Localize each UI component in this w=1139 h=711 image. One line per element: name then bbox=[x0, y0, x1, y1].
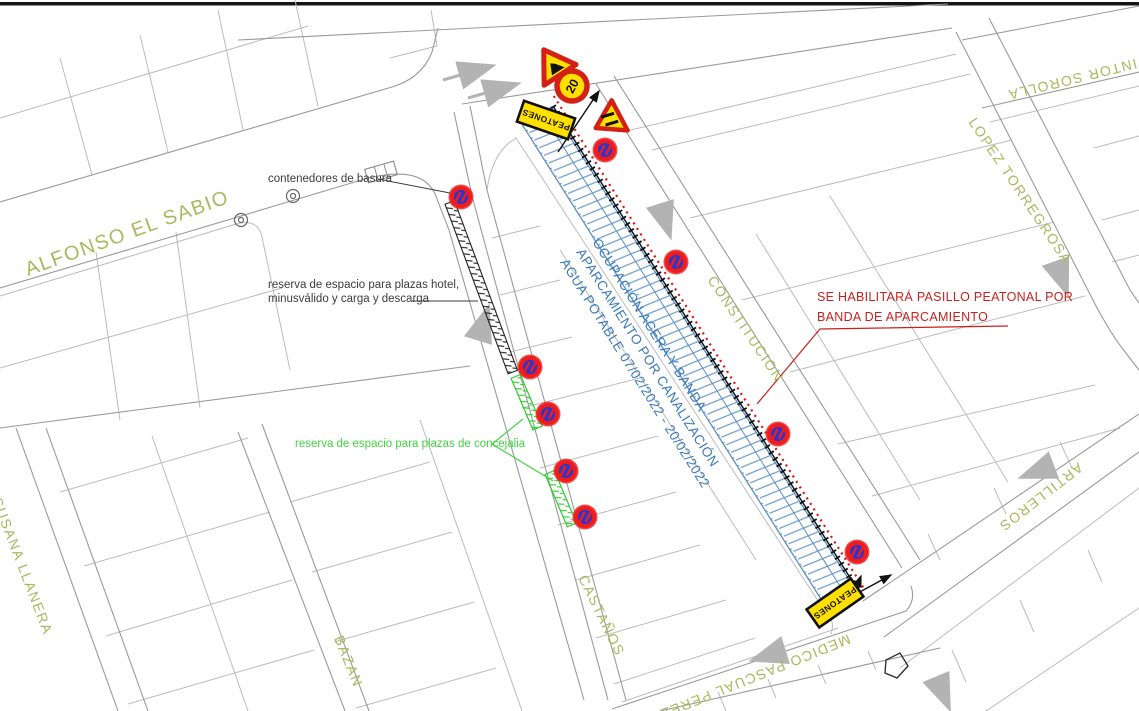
street-label-castanos: CASTAÑOS bbox=[575, 572, 628, 658]
traffic-arrow-artilleros bbox=[1022, 468, 1046, 477]
road-narrows-sign bbox=[588, 100, 628, 143]
street-label-alfonso: ALFONSO EL SABIO bbox=[22, 186, 232, 280]
kiosk-outline bbox=[885, 653, 908, 678]
occupation-hatch-area bbox=[523, 107, 857, 609]
occupation-strip bbox=[518, 96, 864, 612]
no-parking-sign bbox=[845, 540, 870, 565]
pedestrian-dotted-line bbox=[554, 96, 865, 589]
traffic-arrow-bottom bbox=[939, 684, 949, 708]
street-label-constitucion: CONSTITUCION bbox=[705, 273, 788, 385]
reserved-strip-concejalia-1 bbox=[511, 375, 542, 430]
no-parking-sign bbox=[766, 422, 791, 447]
parcel-lines bbox=[0, 0, 1139, 711]
street-label-pintor: PINTOR SOROLLA bbox=[1006, 53, 1139, 103]
route-arrows bbox=[558, 91, 891, 600]
street-label-bazan: BAZAN bbox=[331, 633, 366, 689]
no-parking-sign bbox=[573, 505, 598, 530]
no-parking-sign bbox=[593, 138, 618, 163]
annotation-reserva-hotel-line2: minusválido y carga y descarga bbox=[268, 293, 430, 305]
sheet-border-top bbox=[0, 2, 1139, 6]
traffic-direction-arrows bbox=[443, 66, 1067, 708]
plan-canvas: 20 PEATONES PEATONES ALFONSO EL SABIO SU… bbox=[0, 0, 1139, 711]
street-network bbox=[0, 4, 1139, 711]
traffic-arrow-ene-2 bbox=[468, 84, 517, 98]
leader-pasillo bbox=[757, 326, 1008, 404]
no-parking-sign bbox=[554, 459, 579, 484]
no-parking-sign bbox=[518, 355, 543, 380]
leader-concejalia bbox=[492, 419, 553, 481]
traffic-arrow-ene-1 bbox=[443, 66, 492, 80]
plan-sheet: 20 PEATONES PEATONES ALFONSO EL SABIO SU… bbox=[0, 0, 1139, 711]
no-parking-sign bbox=[449, 185, 474, 210]
traffic-arrow-constitucion bbox=[661, 207, 670, 236]
annotation-pasillo-line1: SE HABILITARÁ PASILLO PEATONAL POR bbox=[817, 289, 1073, 304]
annotation-pasillo-line2: BANDA DE APARCAMIENTO bbox=[817, 310, 988, 324]
no-parking-sign bbox=[664, 250, 689, 275]
street-label-medico: MEDICO PASCUAL PEREZ bbox=[657, 631, 852, 711]
street-label-lopez: LOPEZ TORREGROSA bbox=[966, 115, 1076, 267]
annotation-contenedores: contenedores de basura bbox=[268, 173, 393, 185]
annotation-reserva-hotel-line1: reserva de espacio para plazas hotel, bbox=[268, 279, 459, 291]
annotation-concejalia: reserva de espacio para plazas de concej… bbox=[295, 438, 526, 450]
no-parking-sign bbox=[536, 402, 561, 427]
